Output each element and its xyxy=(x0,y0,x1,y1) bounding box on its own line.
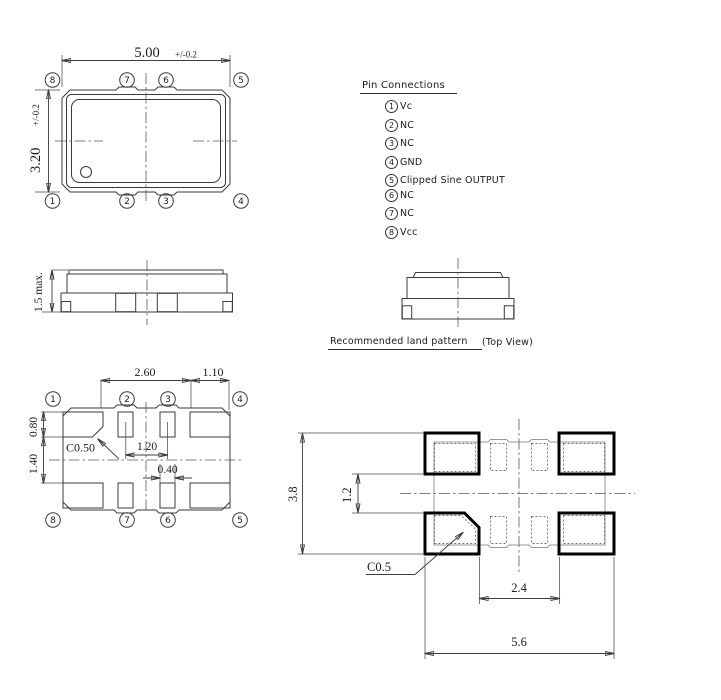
land-pad-top-left xyxy=(425,433,479,474)
chamfer-label: C0.50 xyxy=(66,441,95,455)
pin-number-badge: 4 xyxy=(385,156,398,169)
svg-text:3: 3 xyxy=(163,197,169,207)
pin-connection-item: 4GND xyxy=(385,156,505,169)
land-pad-top-right xyxy=(559,433,614,474)
svg-text:2: 2 xyxy=(124,197,130,207)
dim-center-pitch-label: 1.20 xyxy=(137,441,157,453)
svg-text:1: 1 xyxy=(50,197,56,207)
pin-connection-item: 5Clipped Sine OUTPUT xyxy=(385,174,505,187)
svg-text:5: 5 xyxy=(238,76,244,86)
pin-function-label: NC xyxy=(400,208,414,219)
svg-text:5: 5 xyxy=(237,516,243,526)
pin-function-label: Clipped Sine OUTPUT xyxy=(400,175,505,186)
svg-text:2: 2 xyxy=(124,395,130,405)
dim-height-label: 3.20 xyxy=(28,148,44,173)
dim-width-tolerance: +/-0.2 xyxy=(175,50,197,60)
pin-connection-item: 2NC xyxy=(385,119,505,132)
row-gap-dimension: 1.2 xyxy=(340,474,424,513)
svg-text:8: 8 xyxy=(50,76,56,86)
pin-function-label: GND xyxy=(400,157,422,168)
svg-text:4: 4 xyxy=(237,395,243,405)
package-bottom-view: 2.60 1.10 xyxy=(25,360,280,540)
technical-drawing-sheet: 5.00 +/-0.2 3.20 +/-0.2 xyxy=(0,0,721,700)
package-side-view: 1.5 max. xyxy=(30,255,245,333)
pin-connection-item: 1Vc xyxy=(385,100,505,113)
svg-text:7: 7 xyxy=(124,516,130,526)
pin-function-label: Vc xyxy=(400,101,412,112)
pin-number-badge: 8 xyxy=(385,226,398,239)
land-pattern-title: Recommended land pattern xyxy=(328,336,482,350)
chamfer-label: C0.5 xyxy=(367,560,391,574)
pin-number-badge: 5 xyxy=(385,174,398,187)
dim-pad-span-label: 2.60 xyxy=(135,365,156,379)
dim-overall-height-label: 3.8 xyxy=(286,486,300,502)
land-pad-bottom-right xyxy=(559,513,614,554)
pin-function-label: Vcc xyxy=(400,227,418,238)
pin-number-badge: 1 xyxy=(385,100,398,113)
pin-connections-list: 1Vc 2NC 3NC 4GND 5Clipped Sine OUTPUT 6N… xyxy=(385,100,505,244)
pin-number-badge: 3 xyxy=(385,137,398,150)
dim-width-label: 5.00 xyxy=(134,45,159,61)
package-top-view: 5.00 +/-0.2 3.20 +/-0.2 xyxy=(25,30,280,230)
svg-text:7: 7 xyxy=(124,76,130,86)
dim-overall-width-label: 5.6 xyxy=(511,635,527,649)
svg-text:8: 8 xyxy=(50,516,56,526)
package-end-view xyxy=(385,255,525,333)
dim-height-tolerance: +/-0.2 xyxy=(31,104,41,126)
dim-inner-span-label: 2.4 xyxy=(511,581,527,595)
dim-small-pad-width-label: 0.40 xyxy=(157,464,177,476)
pin-function-label: NC xyxy=(400,138,414,149)
dim-row-gap-label: 1.2 xyxy=(340,487,354,503)
dim-max-height-label: 1.5 max. xyxy=(33,272,45,312)
dim-corner-pad-width-label: 1.10 xyxy=(203,365,224,379)
land-pattern-view-note: (Top View) xyxy=(482,337,533,348)
pin-number-badge: 2 xyxy=(385,119,398,132)
left-dimensions: 0.80 1.40 xyxy=(28,412,63,483)
svg-text:1: 1 xyxy=(50,395,56,405)
land-pattern-view: 3.8 1.2 C0.5 2.4 xyxy=(290,395,720,690)
dim-row-gap-label: 1.40 xyxy=(28,454,40,474)
pin-function-label: NC xyxy=(400,190,414,201)
land-pad-bottom-left-chamfered xyxy=(425,513,479,554)
pin-connection-item: 3NC xyxy=(385,137,505,150)
svg-text:3: 3 xyxy=(165,395,171,405)
svg-text:6: 6 xyxy=(165,516,171,526)
pin-connection-item: 6NC xyxy=(385,189,505,202)
pin-connection-item: 8Vcc xyxy=(385,226,505,239)
pin-function-label: NC xyxy=(400,120,414,131)
inner-span-dimension: 2.4 xyxy=(480,557,560,604)
pin-connections-title: Pin Connections xyxy=(360,80,457,94)
svg-text:4: 4 xyxy=(238,197,244,207)
pin-number-badge: 7 xyxy=(385,207,398,220)
overall-width-dimension: 5.6 xyxy=(425,557,614,659)
pin-connection-item: 7NC xyxy=(385,207,505,220)
dim-pad-height-label: 0.80 xyxy=(28,417,40,437)
package-outline xyxy=(63,405,230,513)
pin-number-badge: 6 xyxy=(385,189,398,202)
svg-text:6: 6 xyxy=(163,76,169,86)
